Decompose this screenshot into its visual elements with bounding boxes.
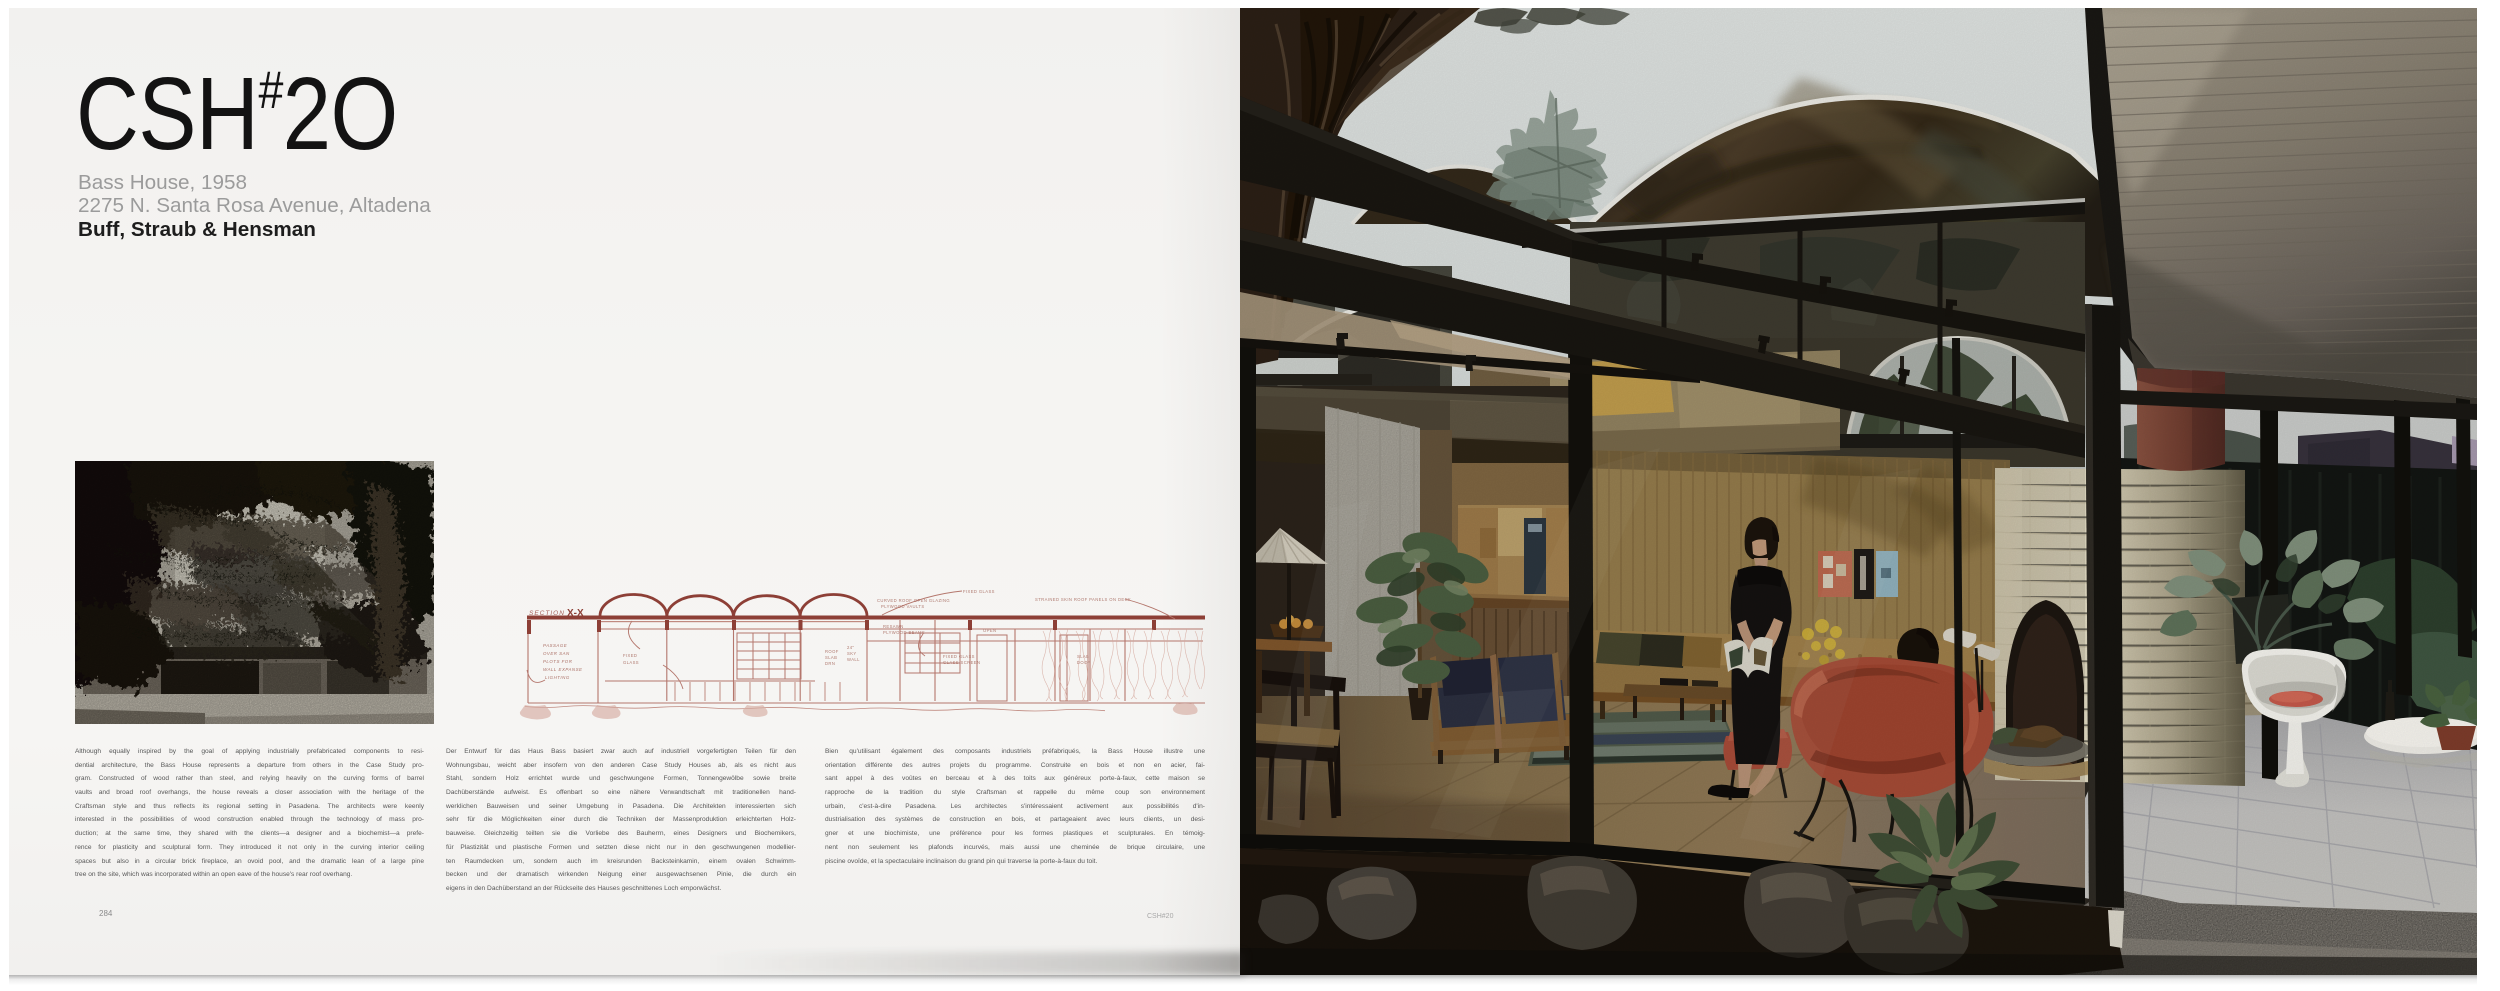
svg-text:PLYWOOD BEAMS: PLYWOOD BEAMS [883, 630, 925, 635]
svg-text:RESAWN: RESAWN [883, 624, 904, 629]
svg-text:OPEN: OPEN [983, 628, 996, 633]
svg-text:SLAB: SLAB [825, 655, 837, 660]
svg-text:PASSAGE: PASSAGE [543, 643, 567, 648]
svg-text:24": 24" [847, 645, 854, 650]
svg-text:DRN: DRN [825, 661, 835, 666]
svg-text:SLAB: SLAB [1077, 654, 1089, 659]
svg-text:PLYWOOD VAULTS: PLYWOOD VAULTS [881, 604, 925, 609]
svg-text:STRAINED SKIN ROOF PANELS ON D: STRAINED SKIN ROOF PANELS ON DECK [1035, 597, 1131, 602]
svg-text:GLASS: GLASS [623, 660, 639, 665]
svg-text:CURVED ROOF OPEN GLAZING: CURVED ROOF OPEN GLAZING [877, 598, 950, 603]
svg-text:FIXED: FIXED [623, 653, 637, 658]
svg-text:OVER SAN: OVER SAN [543, 651, 570, 656]
svg-text:GLASS SCREEN: GLASS SCREEN [943, 660, 980, 665]
svg-text:LIGHTING: LIGHTING [545, 675, 570, 680]
svg-text:ROOF: ROOF [825, 649, 839, 654]
svg-text:FIXED GLASS: FIXED GLASS [963, 589, 995, 594]
svg-text:FIXED GLASS: FIXED GLASS [943, 654, 975, 659]
svg-text:SKY: SKY [847, 651, 857, 656]
svg-text:PLOTS FOR: PLOTS FOR [543, 659, 573, 664]
svg-text:WALL EXPANSE: WALL EXPANSE [543, 667, 582, 672]
svg-text:WALL: WALL [847, 657, 860, 662]
svg-text:DOOR: DOOR [1077, 660, 1091, 665]
